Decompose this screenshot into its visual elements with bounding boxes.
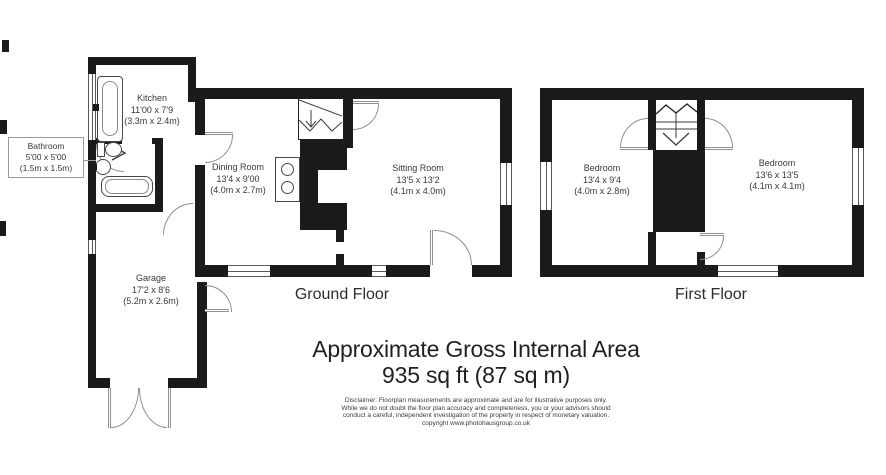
door-leaf bbox=[168, 388, 171, 428]
bathtub-inner bbox=[105, 179, 149, 194]
wall bbox=[500, 205, 512, 277]
window bbox=[718, 265, 778, 277]
kitchen-label: Kitchen 11'00 x 7'9 (3.3m x 2.4m) bbox=[102, 93, 202, 128]
wall bbox=[88, 204, 163, 212]
room-name: Dining Room bbox=[188, 162, 288, 174]
window bbox=[372, 265, 386, 277]
door-leaf bbox=[430, 230, 433, 265]
ground-floor-label: Ground Floor bbox=[262, 286, 422, 304]
room-name: Sitting Room bbox=[368, 163, 468, 175]
door-arc bbox=[205, 135, 233, 163]
first-floor-label: First Floor bbox=[631, 286, 791, 304]
door-arc bbox=[205, 285, 232, 312]
window bbox=[852, 148, 864, 205]
wall bbox=[88, 57, 96, 74]
staircase-first bbox=[656, 100, 697, 150]
room-size-imperial: 13'4 x 9'4 bbox=[552, 175, 652, 187]
disclaimer-line: Disclaimer: Floorplan measurements are a… bbox=[238, 397, 714, 405]
wall bbox=[336, 230, 344, 242]
room-name: Bedroom bbox=[552, 163, 652, 175]
disclaimer: Disclaimer: Floorplan measurements are a… bbox=[238, 397, 714, 427]
room-size-imperial: 13'5 x 13'2 bbox=[368, 175, 468, 187]
chimney-shaft bbox=[653, 150, 705, 232]
wall bbox=[500, 99, 512, 163]
door-arc bbox=[705, 118, 733, 148]
wall bbox=[270, 265, 372, 277]
disclaimer-line: copyright www.photohausgroup.co.uk bbox=[238, 420, 714, 428]
fireplace-recess bbox=[318, 170, 347, 203]
room-size-imperial: 5'00 x 5'00 bbox=[9, 152, 83, 163]
callout-connector bbox=[84, 160, 96, 161]
wall bbox=[88, 212, 96, 240]
door-arc bbox=[620, 118, 648, 148]
bedroom-right-label: Bedroom 13'6 x 13'5 (4.1m x 4.1m) bbox=[727, 158, 827, 193]
garage-label: Garage 17'2 x 8'6 (5.2m x 2.6m) bbox=[101, 273, 201, 308]
wall bbox=[386, 265, 430, 277]
wall bbox=[540, 100, 552, 162]
disclaimer-line: conduct a careful, independent investiga… bbox=[238, 412, 714, 420]
window bbox=[228, 265, 270, 277]
door-arc bbox=[353, 104, 379, 130]
wall bbox=[697, 100, 705, 150]
bathroom-callout: Bathroom 5'00 x 5'00 (1.5m x 1.5m) bbox=[8, 137, 84, 178]
wall bbox=[540, 265, 718, 277]
door-arc bbox=[700, 236, 724, 260]
room-size-metric: (4.1m x 4.1m) bbox=[727, 181, 827, 193]
wall bbox=[155, 144, 163, 206]
tap-icon bbox=[93, 104, 99, 111]
bedroom-left-label: Bedroom 13'4 x 9'4 (4.0m x 2.8m) bbox=[552, 163, 652, 198]
wall bbox=[88, 378, 110, 388]
room-name: Garage bbox=[101, 273, 201, 285]
wall bbox=[778, 265, 864, 277]
wall bbox=[88, 254, 96, 388]
wall bbox=[540, 88, 864, 100]
room-size-metric: (5.2m x 2.6m) bbox=[101, 296, 201, 308]
edge-mark bbox=[0, 221, 6, 236]
wall bbox=[195, 88, 512, 99]
floorplan: Kitchen 11'00 x 7'9 (3.3m x 2.4m) Bathro… bbox=[0, 0, 886, 475]
room-name: Bedroom bbox=[727, 158, 827, 170]
room-size-metric: (1.5m x 1.5m) bbox=[9, 163, 83, 174]
door-arc bbox=[434, 230, 472, 265]
room-size-metric: (4.0m x 2.8m) bbox=[552, 186, 652, 198]
dining-room-label: Dining Room 13'4 x 9'00 (4.0m x 2.7m) bbox=[188, 162, 288, 197]
door-arc bbox=[139, 388, 167, 428]
room-size-imperial: 13'4 x 9'00 bbox=[188, 174, 288, 186]
window bbox=[540, 162, 552, 210]
room-size-imperial: 11'00 x 7'9 bbox=[102, 105, 202, 117]
wall bbox=[648, 232, 656, 265]
wall bbox=[336, 254, 344, 265]
door-arc bbox=[111, 388, 139, 428]
tap-icon bbox=[92, 164, 97, 170]
page-title: Approximate Gross Internal Area bbox=[176, 336, 776, 363]
toilet-tank-icon bbox=[97, 142, 105, 157]
room-size-metric: (4.0m x 2.7m) bbox=[188, 185, 288, 197]
sitting-room-label: Sitting Room 13'5 x 13'2 (4.1m x 4.0m) bbox=[368, 163, 468, 198]
room-size-imperial: 17'2 x 8'6 bbox=[101, 285, 201, 297]
staircase-ground bbox=[298, 99, 343, 140]
disclaimer-line: While we do not doubt the floor plan acc… bbox=[238, 405, 714, 413]
room-name: Bathroom bbox=[9, 141, 83, 152]
wall bbox=[852, 100, 864, 148]
door-arc bbox=[163, 203, 193, 235]
wall bbox=[88, 57, 196, 65]
wall bbox=[648, 100, 656, 150]
room-size-metric: (4.1m x 4.0m) bbox=[368, 186, 468, 198]
edge-mark bbox=[0, 120, 7, 134]
edge-mark bbox=[2, 40, 9, 52]
window bbox=[500, 163, 512, 205]
total-area: 935 sq ft (87 sq m) bbox=[176, 362, 776, 389]
window bbox=[88, 240, 96, 254]
room-size-imperial: 13'6 x 13'5 bbox=[727, 170, 827, 182]
room-name: Kitchen bbox=[102, 93, 202, 105]
room-size-metric: (3.3m x 2.4m) bbox=[102, 116, 202, 128]
basin-icon bbox=[95, 159, 111, 175]
toilet-icon bbox=[105, 142, 122, 157]
wall bbox=[88, 140, 96, 212]
